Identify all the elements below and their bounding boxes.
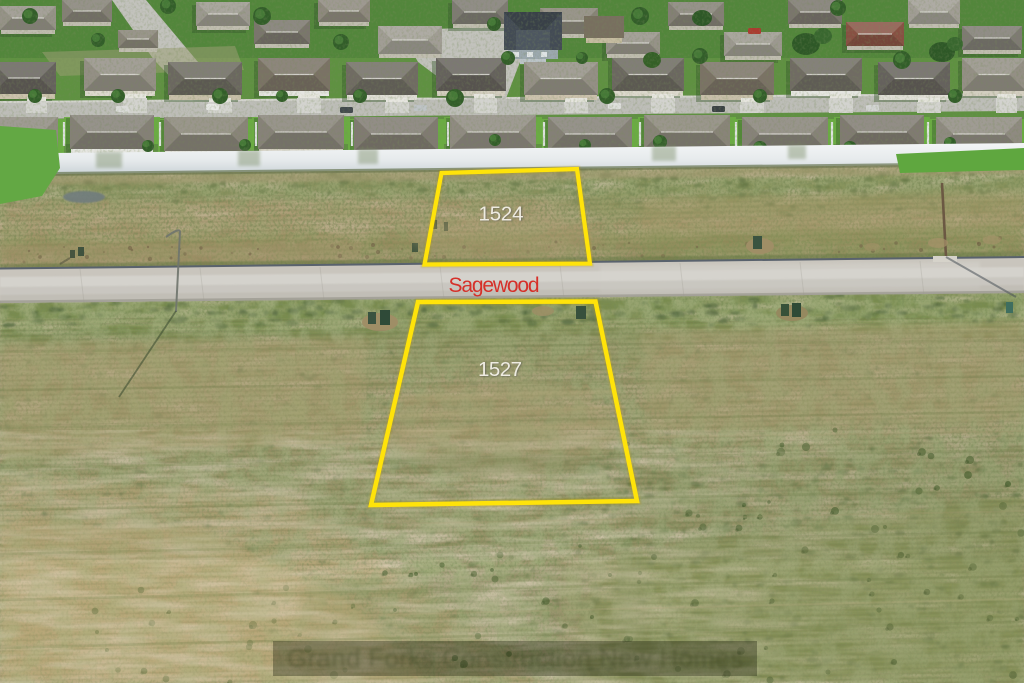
svg-text:1524: 1524 <box>479 203 524 226</box>
svg-text:1527: 1527 <box>478 358 522 381</box>
svg-text:Sagewood: Sagewood <box>449 274 540 297</box>
svg-text:Grand Forks Construction New H: Grand Forks Construction New Homes <box>287 643 743 673</box>
